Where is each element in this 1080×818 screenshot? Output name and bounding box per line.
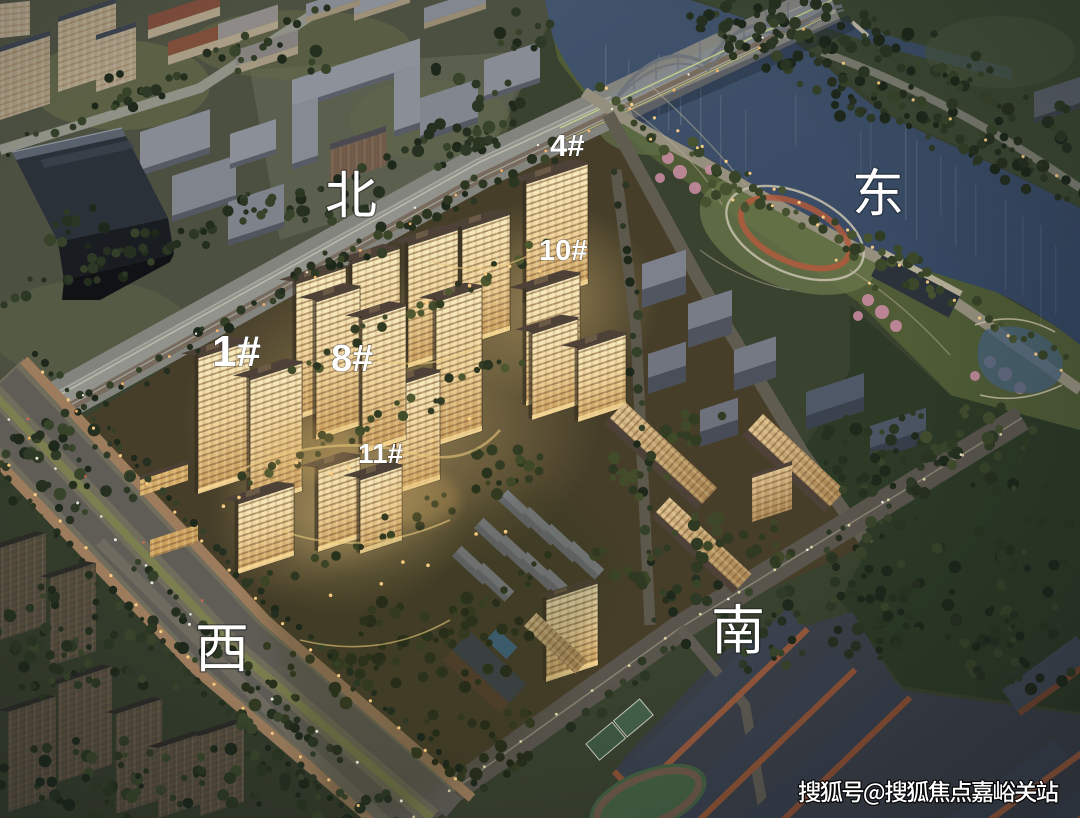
- svg-text:1#: 1#: [212, 327, 261, 376]
- svg-text:4#: 4#: [550, 128, 584, 163]
- svg-text:8#: 8#: [331, 338, 373, 380]
- svg-text:11#: 11#: [358, 438, 404, 469]
- svg-text:10#: 10#: [539, 235, 587, 267]
